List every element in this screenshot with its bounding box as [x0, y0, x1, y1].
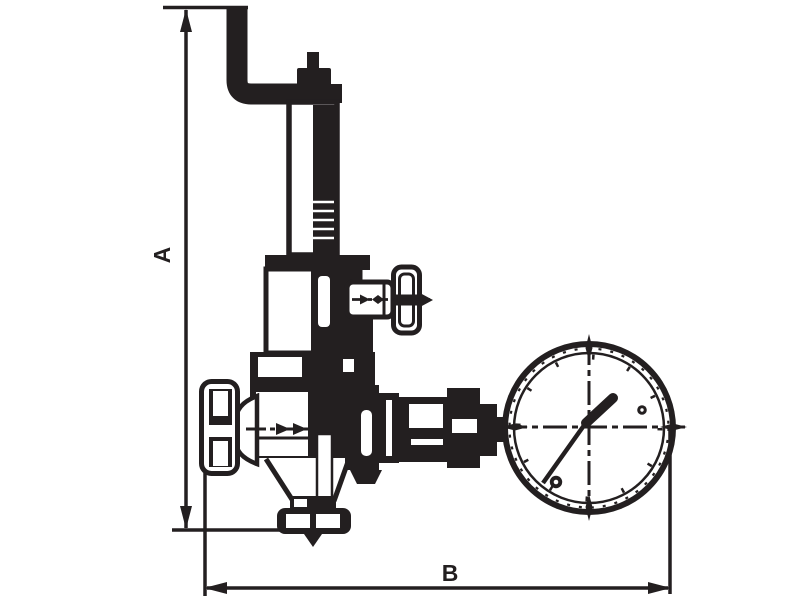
adjusting-spindle — [313, 105, 336, 253]
body-top-window — [258, 357, 302, 377]
dim-a-label: A — [149, 247, 175, 264]
cone-left-edge — [266, 459, 293, 501]
left-handwheel-window-bottom — [213, 441, 228, 466]
dim-b-arrow-right — [648, 582, 671, 594]
connector-collar-groove — [386, 400, 392, 456]
left-handwheel — [202, 382, 238, 474]
valve-drawing-svg: A — [0, 0, 800, 598]
outlet-flange-groove — [361, 410, 372, 456]
pipe-elbow — [237, 8, 298, 94]
drain-passage — [317, 434, 332, 498]
dim-b-label: B — [442, 560, 459, 586]
inlet-pipe — [237, 8, 298, 94]
drain-flow-arrow — [304, 534, 322, 547]
pressure-gauge — [501, 334, 687, 521]
dim-a-arrow-up — [180, 9, 192, 32]
connector-body-groove — [411, 439, 443, 445]
outlet-flange-foot — [350, 470, 382, 484]
drain-neck-slot — [294, 499, 307, 507]
gauge-socket — [480, 404, 497, 456]
dim-b-arrow-left — [204, 582, 227, 594]
gauge-connection — [345, 385, 511, 484]
connector-body-window — [409, 404, 443, 428]
spring-chamber-slot — [318, 276, 330, 327]
drain-fitting-window-right — [316, 514, 340, 528]
tee-spindle-tip — [420, 293, 433, 307]
dim-a-arrow-down — [180, 506, 192, 529]
left-handwheel-window-top — [213, 391, 228, 416]
drain-fitting-window-left — [286, 514, 310, 528]
left-handwheel-hub — [209, 425, 232, 437]
technical-drawing-canvas: A — [0, 0, 800, 598]
gauge-stop-pin-hole — [554, 480, 559, 485]
union-nut-groove — [452, 419, 477, 433]
body-window — [256, 392, 308, 456]
gauge-dial-screw-hole — [640, 408, 643, 411]
gauge-shutoff-tee — [347, 267, 433, 360]
body-top-notch — [343, 359, 354, 372]
